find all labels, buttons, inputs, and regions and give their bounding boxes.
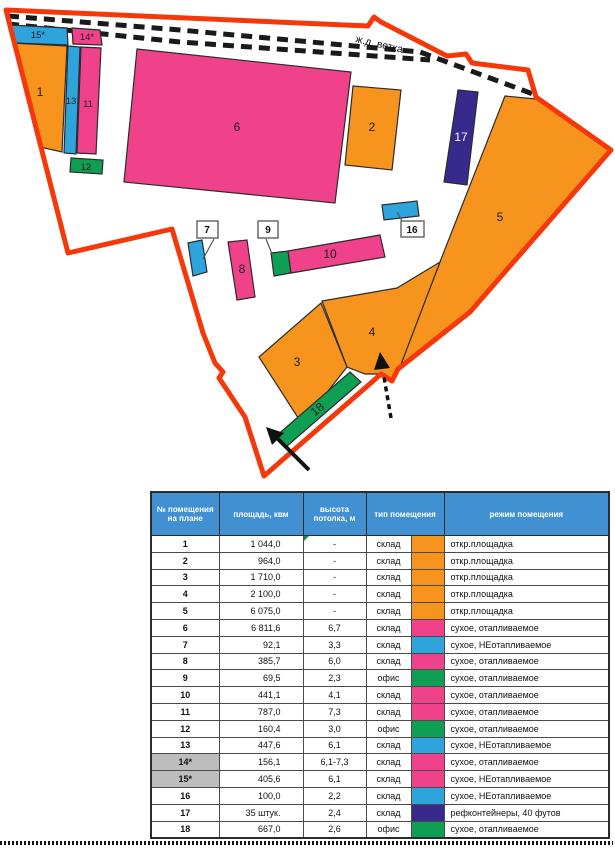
room-type-cell: офис xyxy=(366,821,411,838)
label-building-11: 11 xyxy=(83,99,93,110)
room-area-cell: 6 811,6 xyxy=(219,619,303,636)
room-type-cell: склад xyxy=(366,737,411,754)
room-mode-cell: сухое, отапливаемое xyxy=(444,703,609,720)
room-type-cell: склад xyxy=(366,771,411,788)
room-type-cell: склад xyxy=(366,603,411,620)
site-plan-page: { "plan": { "railway_label": "ж.д. ветка… xyxy=(0,0,615,852)
room-mode-cell: рефконтейнеры, 40 футов xyxy=(444,804,609,821)
label-building-15: 15* xyxy=(31,30,46,41)
room-area-cell: 69,5 xyxy=(219,670,303,687)
room-height-cell: - xyxy=(303,536,366,553)
room-type-cell: офис xyxy=(366,670,411,687)
table-row: 8385,76,0складсухое, отапливаемое xyxy=(151,653,609,670)
room-type-cell: склад xyxy=(366,536,411,553)
room-type-cell: склад xyxy=(366,754,411,771)
room-area-cell: 6 075,0 xyxy=(219,603,303,620)
room-type-cell: склад xyxy=(366,619,411,636)
table-row: 792,13,3складсухое, НЕотапливаемое xyxy=(151,636,609,653)
room-mode-cell: сухое, отапливаемое xyxy=(444,821,609,838)
table-row: 66 811,66,7складсухое, отапливаемое xyxy=(151,619,609,636)
table-row: 56 075,0-складоткр.площадка xyxy=(151,603,609,620)
room-color-swatch xyxy=(411,670,444,687)
room-area-cell: 35 штук. xyxy=(219,804,303,821)
room-mode-cell: сухое, отапливаемое xyxy=(444,670,609,687)
table-row: 16100,02,2складсухое, НЕотапливаемое xyxy=(151,787,609,804)
room-mode-cell: сухое, отапливаемое xyxy=(444,653,609,670)
room-height-cell: 3,3 xyxy=(303,636,366,653)
room-mode-cell: сухое, НЕотапливаемое xyxy=(444,636,609,653)
room-type-cell: склад xyxy=(366,804,411,821)
room-height-cell: 6,1 xyxy=(303,737,366,754)
room-type-cell: склад xyxy=(366,687,411,704)
room-mode-cell: откр.площадка xyxy=(444,586,609,603)
label-building-10: 10 xyxy=(323,247,337,261)
comment-marker-icon xyxy=(304,536,309,541)
room-area-cell: 100,0 xyxy=(219,787,303,804)
room-mode-cell: сухое, отапливаемое xyxy=(444,687,609,704)
room-color-swatch xyxy=(411,619,444,636)
col-header-type: тип помещения xyxy=(366,492,444,536)
room-height-cell: 7,3 xyxy=(303,703,366,720)
label-building-12: 12 xyxy=(81,162,92,173)
room-number-cell: 9 xyxy=(151,670,219,687)
label-area-4: 4 xyxy=(369,325,376,339)
room-area-cell: 667,0 xyxy=(219,821,303,838)
room-number-cell: 18 xyxy=(151,821,219,838)
room-type-cell: склад xyxy=(366,653,411,670)
room-type-cell: офис xyxy=(366,720,411,737)
label-building-8: 8 xyxy=(239,262,246,276)
room-color-swatch xyxy=(411,787,444,804)
room-color-swatch xyxy=(411,804,444,821)
room-type-cell: склад xyxy=(366,569,411,586)
room-color-swatch xyxy=(411,586,444,603)
room-number-cell: 1 xyxy=(151,536,219,553)
room-number-cell: 4 xyxy=(151,586,219,603)
room-area-cell: 441,1 xyxy=(219,687,303,704)
room-mode-cell: сухое, отапливаемое xyxy=(444,720,609,737)
room-number-cell: 15* xyxy=(151,771,219,788)
room-mode-cell: сухое, отапливаемое xyxy=(444,754,609,771)
room-mode-cell: откр.площадка xyxy=(444,536,609,553)
room-color-swatch xyxy=(411,720,444,737)
site-plan: ж.д. ветка 1 15* 14* 13 11 12 6 2 17 5 8… xyxy=(0,0,615,482)
room-number-cell: 12 xyxy=(151,720,219,737)
room-number-cell: 14* xyxy=(151,754,219,771)
table-row: 11 044,0-складоткр.площадка xyxy=(151,536,609,553)
room-color-swatch xyxy=(411,737,444,754)
room-height-cell: 6,1-7,3 xyxy=(303,754,366,771)
room-mode-cell: сухое, НЕотапливаемое xyxy=(444,771,609,788)
room-mode-cell: откр.площадка xyxy=(444,552,609,569)
room-color-swatch xyxy=(411,603,444,620)
col-header-area: площадь, квм xyxy=(219,492,303,536)
room-number-cell: 2 xyxy=(151,552,219,569)
room-color-swatch xyxy=(411,653,444,670)
room-number-cell: 5 xyxy=(151,603,219,620)
callout-9-label: 9 xyxy=(265,225,271,236)
label-building-17: 17 xyxy=(454,130,468,144)
callout-16-label: 16 xyxy=(406,225,418,236)
table-row: 969,52,3офиссухое, отапливаемое xyxy=(151,670,609,687)
room-color-swatch xyxy=(411,754,444,771)
room-height-cell: 2,3 xyxy=(303,670,366,687)
room-height-cell: 6,1 xyxy=(303,771,366,788)
room-height-cell: 2,2 xyxy=(303,787,366,804)
room-color-swatch xyxy=(411,636,444,653)
room-height-cell: 2,6 xyxy=(303,821,366,838)
room-color-swatch xyxy=(411,821,444,838)
room-number-cell: 7 xyxy=(151,636,219,653)
room-height-cell: 4,1 xyxy=(303,687,366,704)
label-building-13: 13 xyxy=(66,96,77,107)
room-type-cell: склад xyxy=(366,552,411,569)
col-header-height: высота потолка, м xyxy=(303,492,366,536)
room-type-cell: склад xyxy=(366,703,411,720)
room-color-swatch xyxy=(411,536,444,553)
col-header-mode: режим помещения xyxy=(444,492,609,536)
room-mode-cell: откр.площадка xyxy=(444,603,609,620)
table-row: 2964,0-складоткр.площадка xyxy=(151,552,609,569)
room-area-cell: 92,1 xyxy=(219,636,303,653)
room-height-cell: - xyxy=(303,586,366,603)
bottom-dotted-rule xyxy=(0,841,613,845)
label-building-6: 6 xyxy=(234,120,241,134)
room-area-cell: 447,6 xyxy=(219,737,303,754)
room-mode-cell: сухое, НЕотапливаемое xyxy=(444,737,609,754)
room-color-swatch xyxy=(411,569,444,586)
room-area-cell: 156,1 xyxy=(219,754,303,771)
room-area-cell: 2 100,0 xyxy=(219,586,303,603)
room-height-cell: 2,4 xyxy=(303,804,366,821)
room-area-cell: 787,0 xyxy=(219,703,303,720)
table-header-row: № помещения на плане площадь, квм высота… xyxy=(151,492,609,536)
room-area-cell: 1 044,0 xyxy=(219,536,303,553)
table-row: 18667,02,6офиссухое, отапливаемое xyxy=(151,821,609,838)
table-row: 42 100,0-складоткр.площадка xyxy=(151,586,609,603)
railway-label: ж.д. ветка xyxy=(354,33,404,56)
room-area-cell: 1 710,0 xyxy=(219,569,303,586)
room-height-cell: - xyxy=(303,552,366,569)
room-color-swatch xyxy=(411,703,444,720)
label-area-5: 5 xyxy=(497,210,504,224)
label-area-1: 1 xyxy=(37,85,44,99)
room-height-cell: 3,0 xyxy=(303,720,366,737)
table-row: 31 710,0-складоткр.площадка xyxy=(151,569,609,586)
table-row: 13447,66,1складсухое, НЕотапливаемое xyxy=(151,737,609,754)
room-number-cell: 10 xyxy=(151,687,219,704)
room-color-swatch xyxy=(411,687,444,704)
table-row: 10441,14,1складсухое, отапливаемое xyxy=(151,687,609,704)
room-height-cell: 6,7 xyxy=(303,619,366,636)
room-type-cell: склад xyxy=(366,636,411,653)
room-mode-cell: сухое, отапливаемое xyxy=(444,619,609,636)
room-number-cell: 6 xyxy=(151,619,219,636)
room-type-cell: склад xyxy=(366,787,411,804)
room-number-cell: 17 xyxy=(151,804,219,821)
area-5 xyxy=(398,96,611,369)
room-area-cell: 160,4 xyxy=(219,720,303,737)
label-area-2: 2 xyxy=(369,120,376,134)
room-height-cell: 6,0 xyxy=(303,653,366,670)
room-area-cell: 964,0 xyxy=(219,552,303,569)
table-row: 15*405,66,1складсухое, НЕотапливаемое xyxy=(151,771,609,788)
room-table-body: 11 044,0-складоткр.площадка2964,0-складо… xyxy=(151,536,609,839)
room-type-cell: склад xyxy=(366,586,411,603)
room-number-cell: 13 xyxy=(151,737,219,754)
room-color-swatch xyxy=(411,771,444,788)
room-area-cell: 385,7 xyxy=(219,653,303,670)
label-building-14: 14* xyxy=(80,32,95,43)
room-color-swatch xyxy=(411,552,444,569)
room-number-cell: 11 xyxy=(151,703,219,720)
room-mode-cell: откр.площадка xyxy=(444,569,609,586)
room-mode-cell: сухое, НЕотапливаемое xyxy=(444,787,609,804)
table-row: 1735 штук.2,4складрефконтейнеры, 40 футо… xyxy=(151,804,609,821)
rooms-table: № помещения на плане площадь, квм высота… xyxy=(150,491,610,839)
callout-9: 9 xyxy=(258,221,278,254)
col-header-number: № помещения на плане xyxy=(151,492,219,536)
table-row: 12160,43,0офиссухое, отапливаемое xyxy=(151,720,609,737)
room-number-cell: 8 xyxy=(151,653,219,670)
table-row: 11787,07,3складсухое, отапливаемое xyxy=(151,703,609,720)
room-height-cell: - xyxy=(303,569,366,586)
table-row: 14*156,16,1-7,3складсухое, отапливаемое xyxy=(151,754,609,771)
room-number-cell: 3 xyxy=(151,569,219,586)
room-number-cell: 16 xyxy=(151,787,219,804)
callout-7-label: 7 xyxy=(204,225,210,236)
room-height-cell: - xyxy=(303,603,366,620)
label-area-3: 3 xyxy=(294,355,301,369)
room-area-cell: 405,6 xyxy=(219,771,303,788)
